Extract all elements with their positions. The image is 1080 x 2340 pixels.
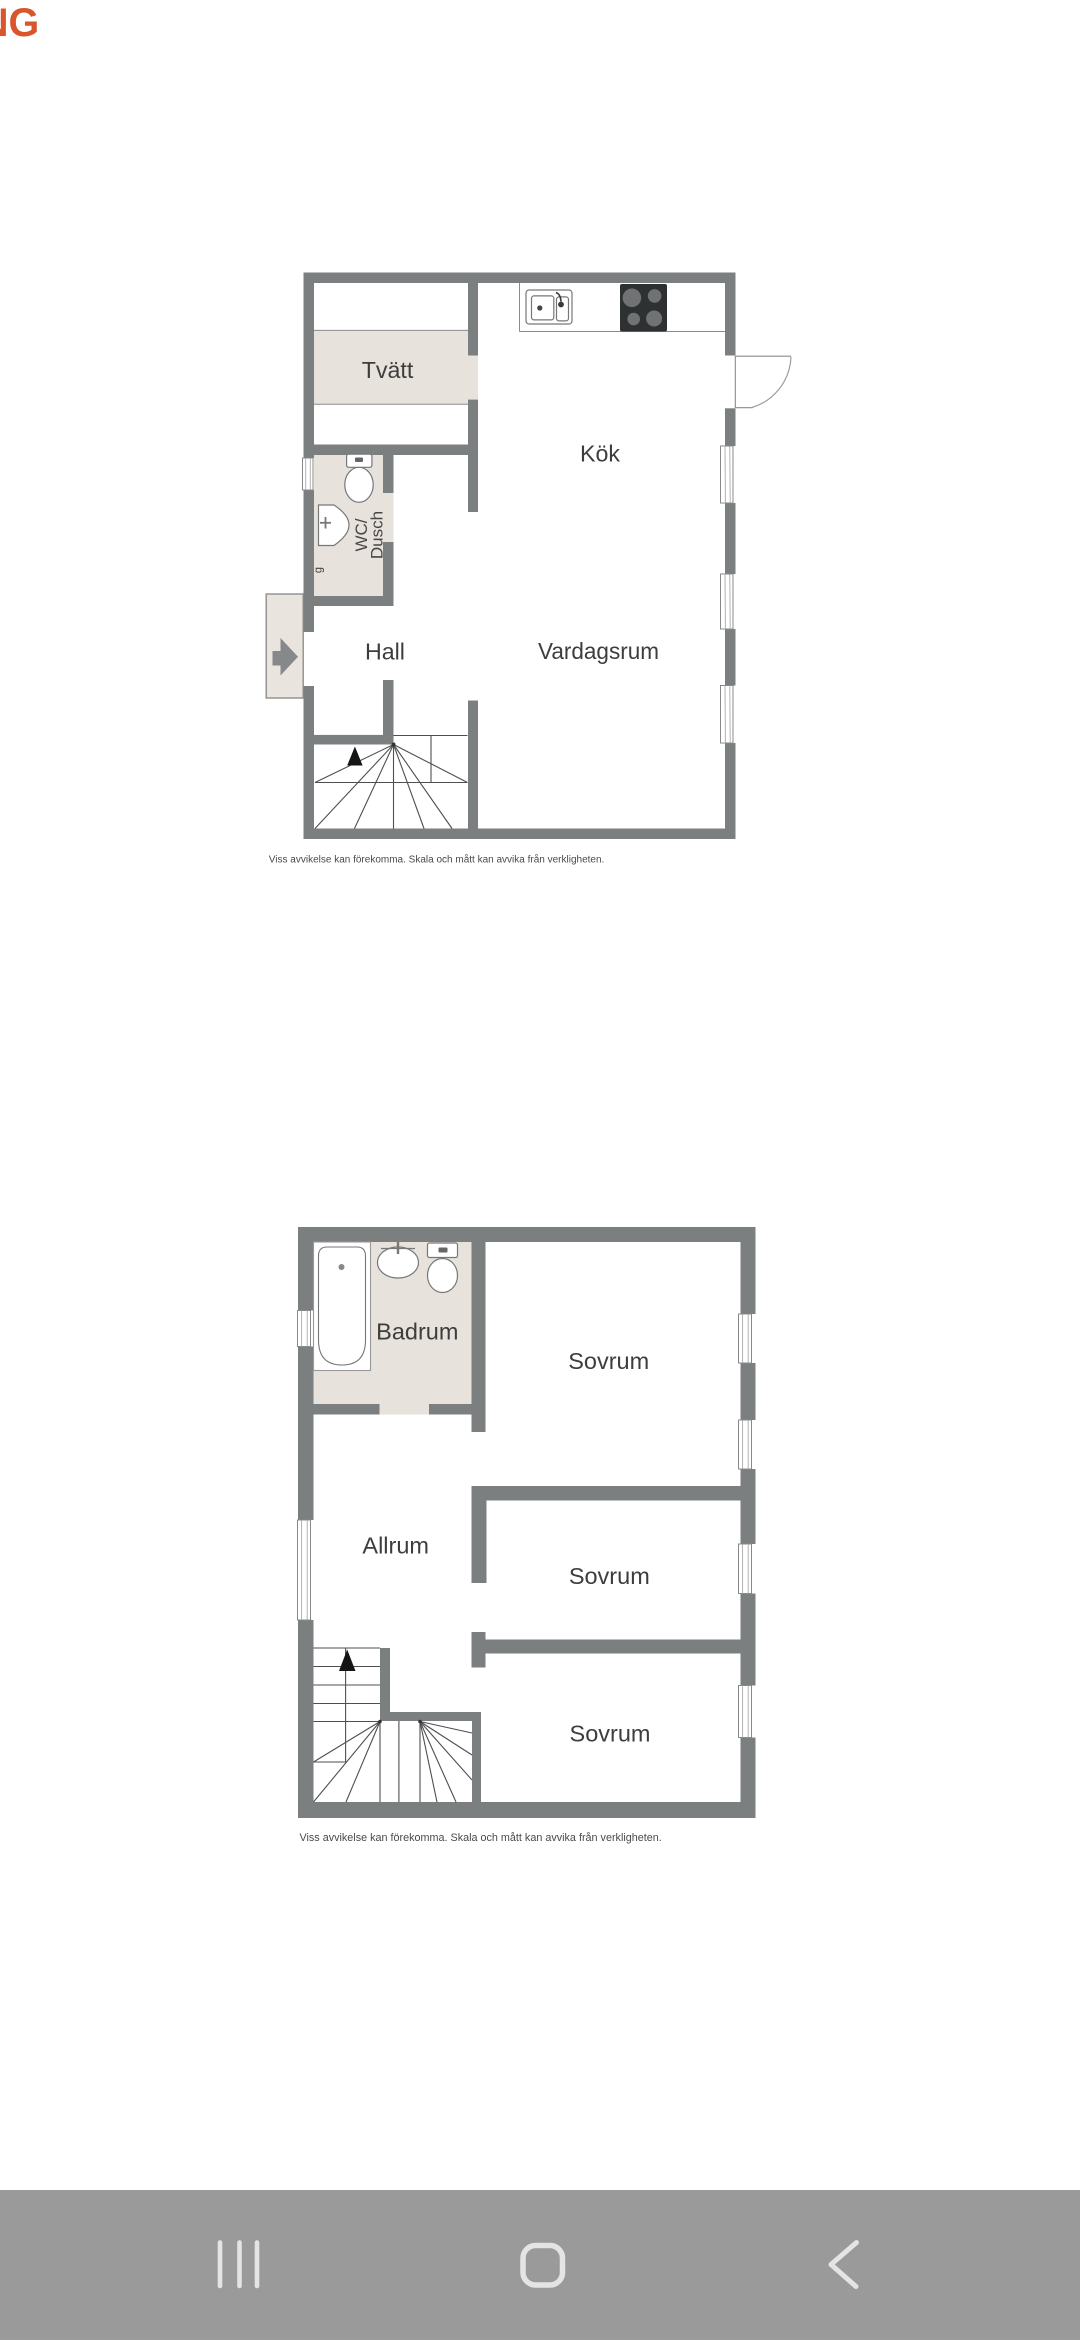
svg-text:Allrum: Allrum bbox=[362, 1533, 429, 1559]
svg-text:Vardagsrum: Vardagsrum bbox=[538, 638, 659, 664]
svg-text:NG: NG bbox=[0, 1, 39, 45]
svg-text:Viss avvikelse kan förekomma.: Viss avvikelse kan förekomma. Skala och … bbox=[300, 1832, 662, 1844]
svg-text:Badrum: Badrum bbox=[376, 1319, 458, 1345]
svg-text:Sovrum: Sovrum bbox=[569, 1563, 650, 1589]
svg-text:Tvätt: Tvätt bbox=[362, 357, 414, 383]
svg-text:Kök: Kök bbox=[580, 441, 620, 467]
svg-text:Sovrum: Sovrum bbox=[568, 1348, 649, 1374]
svg-text:Sovrum: Sovrum bbox=[570, 1721, 651, 1747]
svg-text:Hall: Hall bbox=[365, 639, 405, 665]
svg-text:Dusch: Dusch bbox=[367, 511, 386, 559]
svg-text:g: g bbox=[313, 567, 325, 573]
svg-text:Viss avvikelse kan förekomma.: Viss avvikelse kan förekomma. Skala och … bbox=[269, 854, 605, 866]
